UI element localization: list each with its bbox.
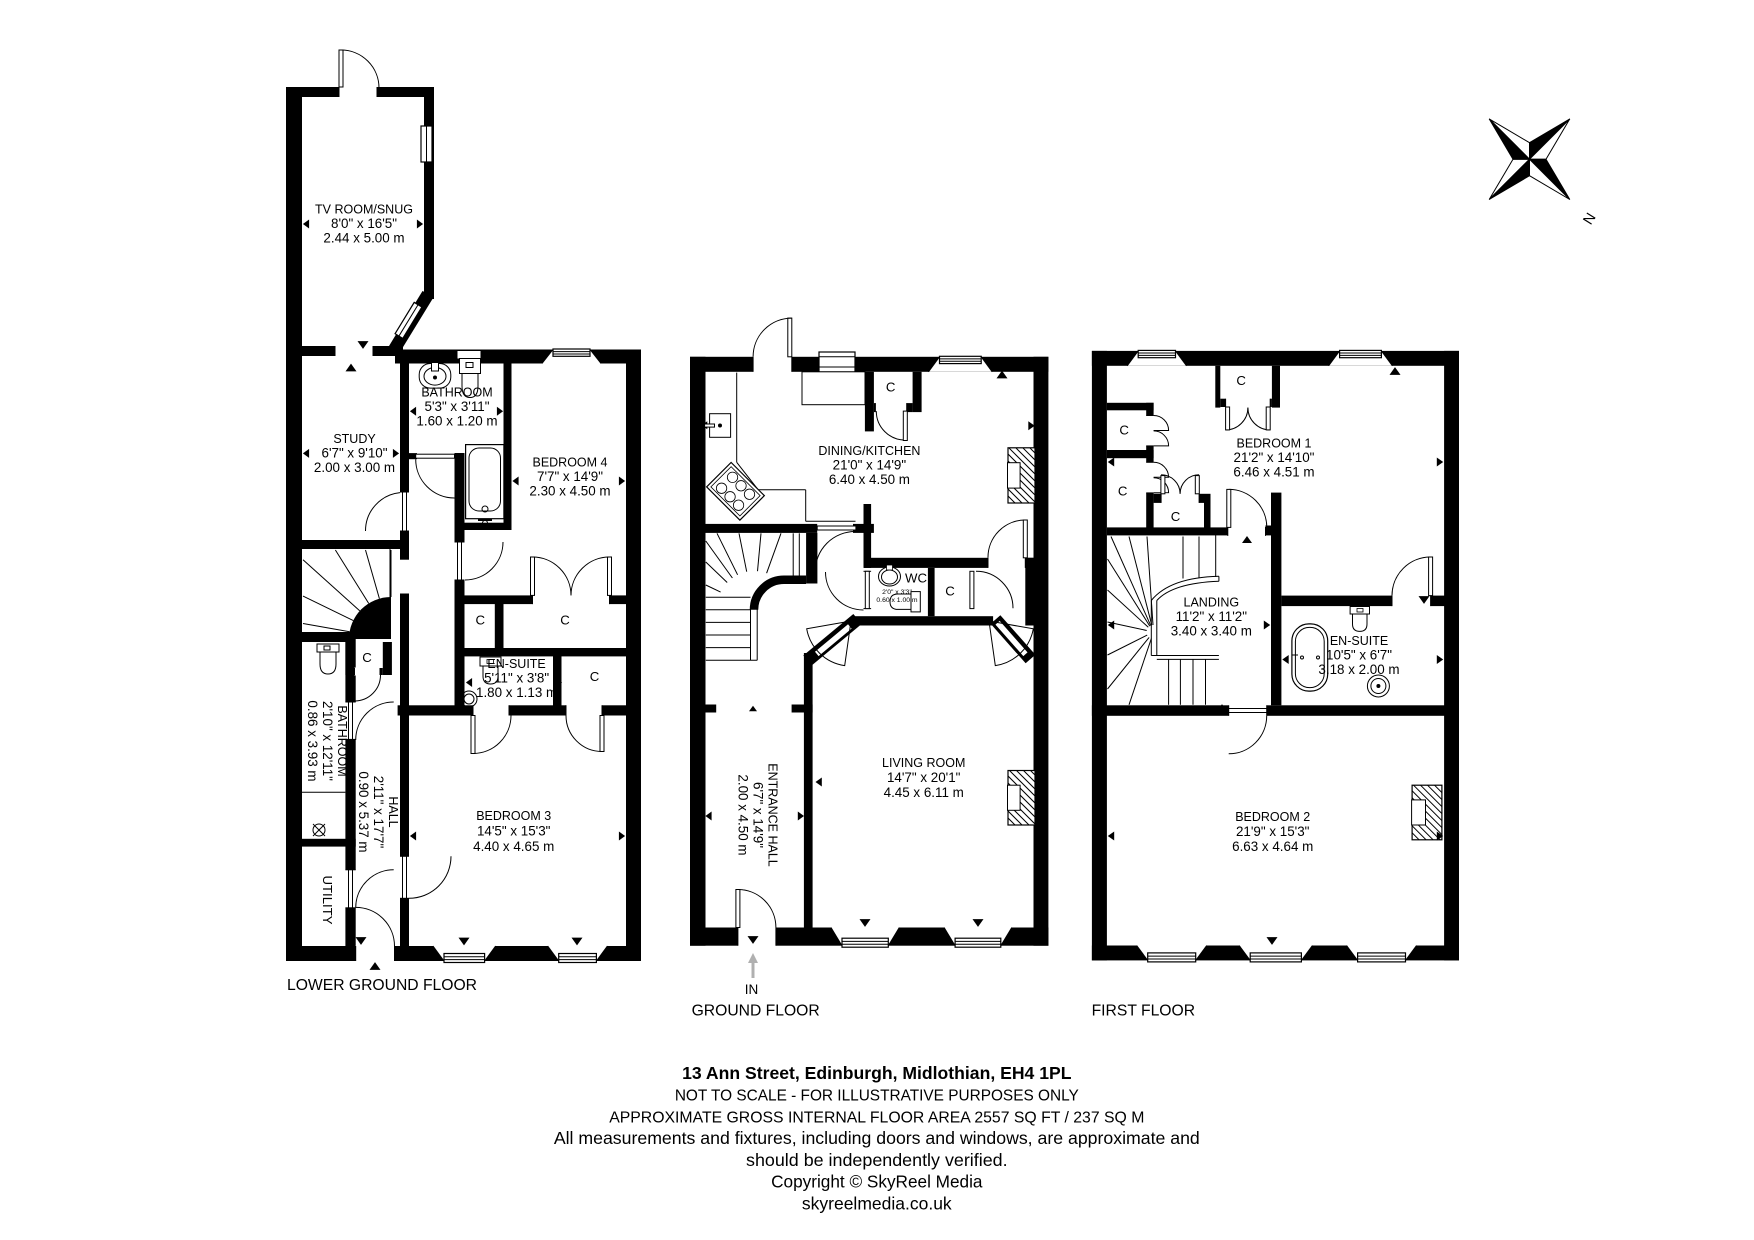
svg-text:UTILITY: UTILITY (320, 875, 335, 924)
svg-text:8'0" x 16'5": 8'0" x 16'5" (331, 216, 397, 231)
svg-text:IN: IN (745, 982, 759, 997)
svg-text:6.40 x 4.50 m: 6.40 x 4.50 m (829, 472, 910, 487)
svg-text:0.90 x 5.37 m: 0.90 x 5.37 m (356, 771, 371, 852)
svg-text:C: C (1118, 484, 1128, 499)
svg-text:21'2" x 14'10": 21'2" x 14'10" (1234, 450, 1315, 465)
svg-text:C: C (1236, 373, 1246, 388)
svg-text:ENTRANCE HALL: ENTRANCE HALL (766, 763, 780, 867)
svg-text:6.46 x 4.51 m: 6.46 x 4.51 m (1233, 465, 1314, 480)
svg-text:DINING/KITCHEN: DINING/KITCHEN (818, 444, 920, 458)
svg-text:LOWER GROUND FLOOR: LOWER GROUND FLOOR (287, 977, 477, 994)
svg-text:C: C (476, 613, 486, 628)
svg-text:2'10" x 12'11": 2'10" x 12'11" (320, 701, 335, 781)
svg-text:21'0" x 14'9": 21'0" x 14'9" (833, 458, 907, 473)
svg-text:BEDROOM 3: BEDROOM 3 (476, 809, 551, 823)
svg-text:0.60 x 1.00 m: 0.60 x 1.00 m (876, 597, 918, 604)
svg-text:STUDY: STUDY (333, 432, 376, 446)
svg-text:11'2" x 11'2": 11'2" x 11'2" (1176, 609, 1248, 624)
svg-text:7'7" x 14'9": 7'7" x 14'9" (537, 469, 603, 484)
svg-text:2.44 x 5.00 m: 2.44 x 5.00 m (323, 231, 404, 246)
svg-text:WC: WC (905, 571, 927, 586)
svg-text:2.30 x 4.50 m: 2.30 x 4.50 m (529, 484, 610, 499)
svg-text:5'3" x 3'11": 5'3" x 3'11" (425, 399, 490, 414)
svg-text:0.86 x 3.93 m: 0.86 x 3.93 m (305, 700, 320, 781)
svg-text:13 Ann Street, Edinburgh, Midl: 13 Ann Street, Edinburgh, Midlothian, EH… (682, 1063, 1072, 1083)
svg-text:1.60 x 1.20 m: 1.60 x 1.20 m (416, 414, 497, 429)
svg-text:C: C (1171, 509, 1181, 524)
svg-text:skyreelmedia.co.uk: skyreelmedia.co.uk (802, 1193, 952, 1213)
svg-text:HALL: HALL (386, 796, 400, 827)
svg-text:14'5" x 15'3": 14'5" x 15'3" (477, 824, 551, 839)
svg-text:2.00 x 4.50 m: 2.00 x 4.50 m (736, 774, 751, 855)
svg-text:3.40 x 3.40 m: 3.40 x 3.40 m (1171, 624, 1252, 639)
svg-text:FIRST FLOOR: FIRST FLOOR (1092, 1003, 1195, 1020)
svg-text:14'7" x 20'1": 14'7" x 20'1" (887, 770, 961, 785)
svg-text:C: C (886, 380, 896, 395)
svg-text:C: C (362, 650, 372, 665)
svg-text:C: C (945, 584, 955, 599)
svg-text:EN-SUITE: EN-SUITE (1330, 634, 1388, 648)
svg-text:1.80 x 1.13 m: 1.80 x 1.13 m (476, 685, 557, 700)
svg-text:C: C (1119, 422, 1129, 437)
svg-text:21'9" x 15'3": 21'9" x 15'3" (1236, 824, 1310, 839)
svg-text:APPROXIMATE GROSS INTERNAL FLO: APPROXIMATE GROSS INTERNAL FLOOR AREA 25… (609, 1109, 1144, 1126)
svg-text:6.63 x 4.64 m: 6.63 x 4.64 m (1232, 839, 1313, 854)
svg-text:Copyright © SkyReel Media: Copyright © SkyReel Media (771, 1171, 983, 1191)
svg-text:All measurements and fixtures,: All measurements and fixtures, including… (554, 1128, 1200, 1148)
svg-text:NOT TO SCALE - FOR ILLUSTRATIV: NOT TO SCALE - FOR ILLUSTRATIVE PURPOSES… (675, 1087, 1079, 1104)
svg-text:4.40 x 4.65 m: 4.40 x 4.65 m (473, 839, 554, 854)
svg-text:3.18 x 2.00 m: 3.18 x 2.00 m (1318, 662, 1399, 677)
svg-text:C: C (590, 669, 600, 684)
svg-text:6'7" x 9'10": 6'7" x 9'10" (322, 446, 388, 461)
svg-text:2.00 x 3.00 m: 2.00 x 3.00 m (314, 460, 395, 475)
svg-text:LANDING: LANDING (1184, 596, 1240, 610)
svg-text:BEDROOM 2: BEDROOM 2 (1235, 810, 1310, 824)
svg-text:BATHROOM: BATHROOM (421, 386, 492, 400)
svg-text:10'5" x 6'7": 10'5" x 6'7" (1326, 647, 1392, 662)
svg-text:6'7" x 14'9": 6'7" x 14'9" (751, 782, 766, 848)
svg-text:GROUND FLOOR: GROUND FLOOR (692, 1003, 820, 1020)
svg-text:EN-SUITE: EN-SUITE (487, 657, 545, 671)
svg-text:LIVING ROOM: LIVING ROOM (882, 756, 965, 770)
svg-text:should be independently verifi: should be independently verified. (746, 1150, 1008, 1170)
svg-text:4.45 x 6.11 m: 4.45 x 6.11 m (884, 785, 964, 800)
svg-text:2'11" x 17'7": 2'11" x 17'7" (371, 776, 386, 849)
svg-text:2'0" x 3'3": 2'0" x 3'3" (882, 589, 912, 596)
svg-text:BEDROOM 1: BEDROOM 1 (1236, 437, 1311, 451)
svg-text:BATHROOM: BATHROOM (335, 705, 349, 776)
svg-text:TV ROOM/SNUG: TV ROOM/SNUG (315, 203, 413, 217)
svg-text:BEDROOM 4: BEDROOM 4 (532, 456, 607, 470)
svg-text:5'11" x 3'8": 5'11" x 3'8" (484, 671, 549, 686)
svg-text:C: C (560, 613, 570, 628)
